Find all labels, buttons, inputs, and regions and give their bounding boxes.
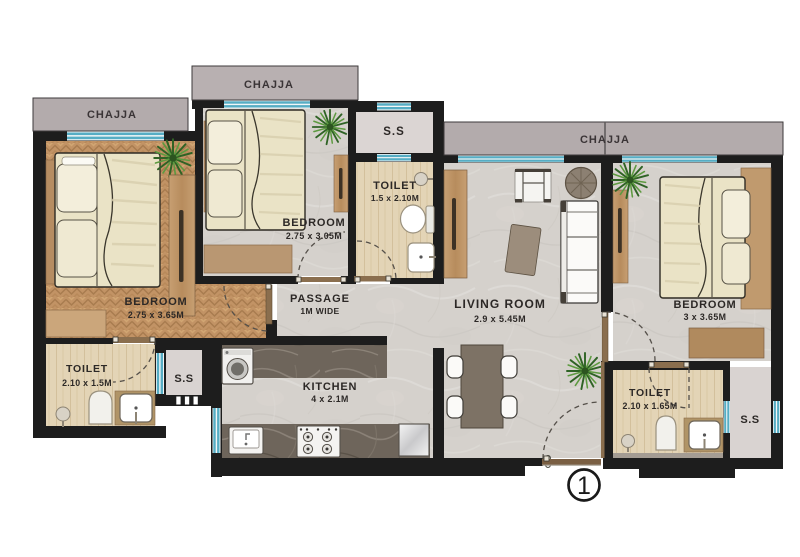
svg-text:S.S: S.S bbox=[740, 414, 759, 426]
svg-text:PASSAGE: PASSAGE bbox=[290, 293, 350, 305]
svg-text:3 x 3.65M: 3 x 3.65M bbox=[684, 312, 727, 322]
svg-text:CHAJJA: CHAJJA bbox=[87, 109, 137, 121]
svg-text:TOILET: TOILET bbox=[373, 180, 417, 192]
svg-text:BEDROOM: BEDROOM bbox=[673, 299, 736, 311]
svg-text:2.9 x 5.45M: 2.9 x 5.45M bbox=[474, 314, 526, 324]
svg-text:S.S: S.S bbox=[383, 126, 405, 138]
svg-text:2.75 x 3.65M: 2.75 x 3.65M bbox=[128, 310, 184, 320]
svg-text:2.10 x 1.5M: 2.10 x 1.5M bbox=[62, 378, 112, 388]
svg-text:TOILET: TOILET bbox=[629, 387, 671, 399]
svg-text:1: 1 bbox=[577, 472, 591, 500]
svg-text:CHAJJA: CHAJJA bbox=[580, 134, 630, 146]
svg-text:BEDROOM: BEDROOM bbox=[124, 296, 187, 308]
svg-text:TOILET: TOILET bbox=[66, 363, 108, 375]
svg-text:CHAJJA: CHAJJA bbox=[244, 79, 294, 91]
svg-text:4 x 2.1M: 4 x 2.1M bbox=[311, 394, 348, 404]
svg-text:KITCHEN: KITCHEN bbox=[303, 381, 358, 393]
svg-text:2.10 x 1.65M: 2.10 x 1.65M bbox=[623, 401, 678, 411]
svg-text:S.S: S.S bbox=[174, 373, 193, 385]
svg-text:LIVING ROOM: LIVING ROOM bbox=[454, 297, 546, 311]
svg-text:BEDROOM: BEDROOM bbox=[282, 217, 345, 229]
svg-text:1M WIDE: 1M WIDE bbox=[300, 306, 339, 316]
svg-text:2.75 x 3.05M: 2.75 x 3.05M bbox=[286, 231, 342, 241]
svg-text:1.5 x 2.10M: 1.5 x 2.10M bbox=[371, 193, 419, 203]
